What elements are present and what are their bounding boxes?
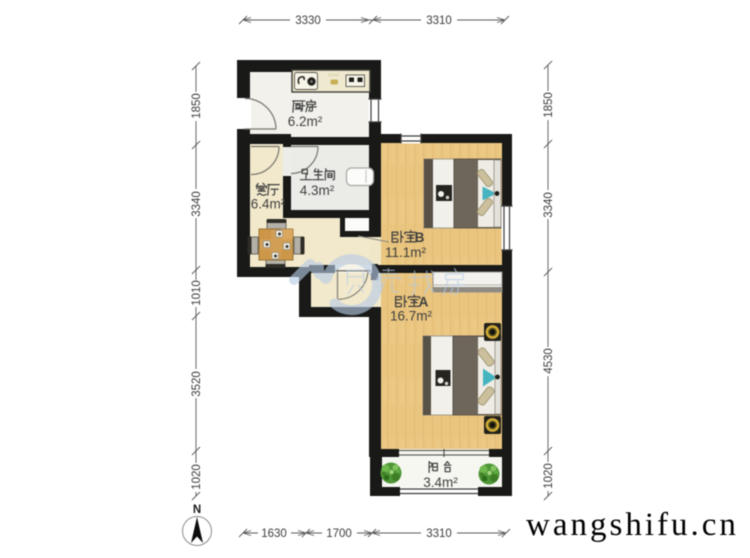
svg-text:11.1m²: 11.1m² bbox=[385, 245, 427, 260]
svg-text:3340: 3340 bbox=[543, 192, 555, 218]
svg-text:4.3m²: 4.3m² bbox=[300, 183, 335, 198]
svg-text:3310: 3310 bbox=[426, 15, 452, 27]
svg-text:6.4m²: 6.4m² bbox=[251, 196, 286, 211]
svg-text:1850: 1850 bbox=[191, 93, 203, 119]
svg-text:3520: 3520 bbox=[191, 371, 203, 397]
svg-text:3340: 3340 bbox=[191, 191, 203, 217]
svg-text:N: N bbox=[193, 504, 201, 516]
svg-text:B: B bbox=[415, 230, 425, 245]
svg-text:1630: 1630 bbox=[261, 528, 287, 540]
svg-text:4530: 4530 bbox=[543, 348, 555, 374]
svg-text:3310: 3310 bbox=[426, 528, 452, 540]
svg-text:wangshifu.cn: wangshifu.cn bbox=[526, 507, 739, 543]
svg-text:1700: 1700 bbox=[326, 528, 352, 540]
svg-text:3.4m²: 3.4m² bbox=[423, 475, 458, 490]
svg-text:1010: 1010 bbox=[191, 280, 203, 306]
svg-text:1850: 1850 bbox=[543, 92, 555, 118]
svg-text:3330: 3330 bbox=[295, 15, 321, 27]
svg-text:1020: 1020 bbox=[543, 463, 555, 489]
svg-text:A: A bbox=[419, 294, 429, 309]
svg-text:1020: 1020 bbox=[191, 464, 203, 490]
svg-text:6.2m²: 6.2m² bbox=[288, 114, 323, 129]
svg-text:16.7m²: 16.7m² bbox=[390, 308, 433, 323]
